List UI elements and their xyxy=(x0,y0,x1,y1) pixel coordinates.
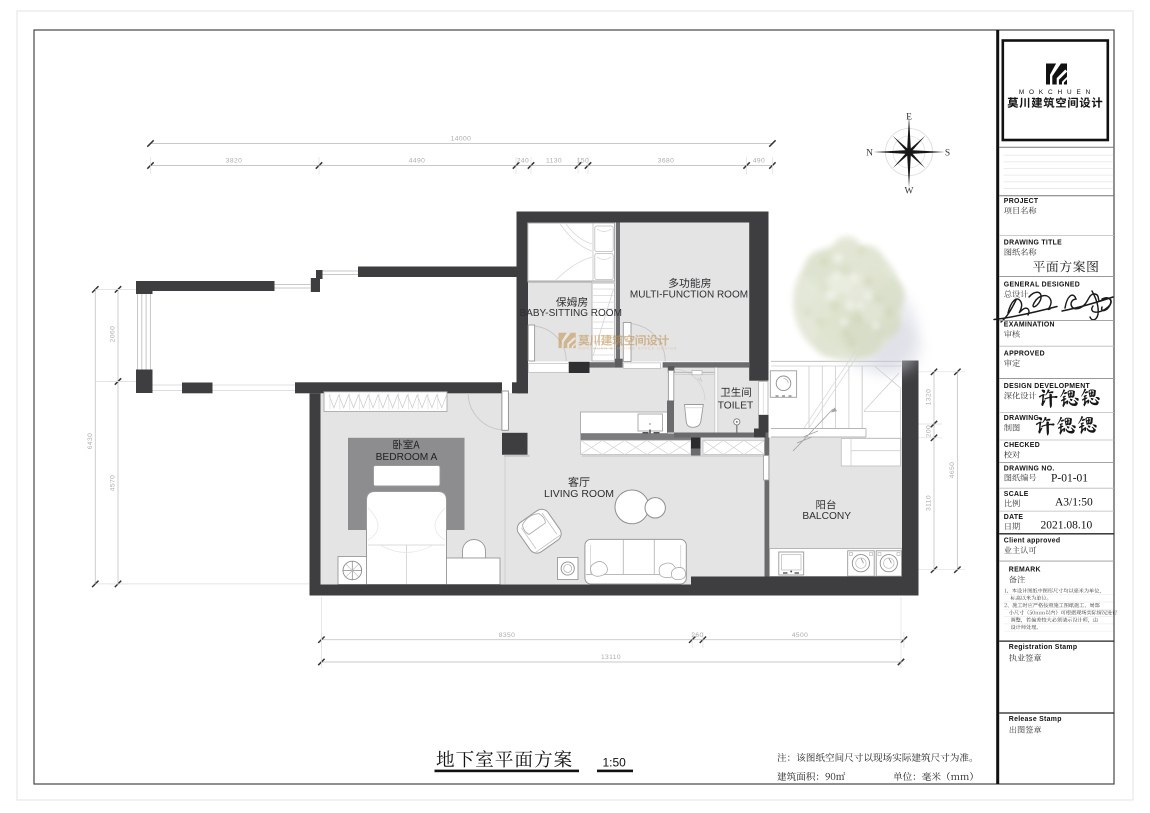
svg-text:3110: 3110 xyxy=(926,495,933,511)
svg-text:200: 200 xyxy=(926,425,933,437)
svg-text:13110: 13110 xyxy=(601,654,621,661)
svg-text:4650: 4650 xyxy=(949,462,956,478)
svg-text:3820: 3820 xyxy=(226,158,242,165)
svg-text:W: W xyxy=(905,187,914,197)
svg-text:N: N xyxy=(866,149,873,159)
svg-text:Client approved: Client approved xyxy=(1004,538,1061,545)
svg-text:SCALE: SCALE xyxy=(1004,491,1029,498)
svg-text:4570: 4570 xyxy=(110,475,117,491)
svg-text:A3/1:50: A3/1:50 xyxy=(1055,497,1093,509)
svg-text:240: 240 xyxy=(517,158,529,165)
svg-text:CHECKED: CHECKED xyxy=(1004,442,1040,449)
svg-text:MULTI-FUNCTION ROOM: MULTI-FUNCTION ROOM xyxy=(630,290,748,301)
svg-text:DRAWING: DRAWING xyxy=(1004,415,1039,422)
svg-text:1130: 1130 xyxy=(546,158,562,165)
svg-text:GENERAL DESIGNED: GENERAL DESIGNED xyxy=(1004,282,1080,289)
svg-text:DATE: DATE xyxy=(1004,514,1024,521)
svg-text:DESIGN DEVELOPMENT: DESIGN DEVELOPMENT xyxy=(1004,383,1091,390)
svg-text:MOKCHUEN BUILDING SPACE DESIGN: MOKCHUEN BUILDING SPACE DESIGN xyxy=(579,347,678,351)
svg-text:BABY-SITTING ROOM: BABY-SITTING ROOM xyxy=(519,308,621,319)
svg-text:1:50: 1:50 xyxy=(603,756,627,770)
svg-text:1320: 1320 xyxy=(926,389,933,405)
svg-text:M O K C H U E N: M O K C H U E N xyxy=(1019,89,1092,96)
svg-text:PROJECT: PROJECT xyxy=(1004,198,1039,205)
svg-text:EXAMINATION: EXAMINATION xyxy=(1004,321,1055,328)
svg-text:DRAWING NO.: DRAWING NO. xyxy=(1004,465,1055,472)
svg-text:P-01-01: P-01-01 xyxy=(1051,472,1088,484)
svg-text:BALCONY: BALCONY xyxy=(802,511,851,522)
svg-text:REMARK: REMARK xyxy=(1009,567,1041,574)
svg-text:14000: 14000 xyxy=(451,136,472,143)
svg-text:DRAWING TITLE: DRAWING TITLE xyxy=(1004,239,1062,246)
svg-text:4490: 4490 xyxy=(409,158,425,165)
svg-text:150: 150 xyxy=(577,158,589,165)
svg-text:TOILET: TOILET xyxy=(718,400,753,411)
svg-text:8350: 8350 xyxy=(499,632,515,639)
svg-text:BEDROOM A: BEDROOM A xyxy=(376,452,438,463)
svg-text:APPROVED: APPROVED xyxy=(1004,351,1045,358)
svg-text:3680: 3680 xyxy=(658,158,674,165)
svg-text:260: 260 xyxy=(691,632,703,639)
svg-text:490: 490 xyxy=(753,158,765,165)
svg-text:Registration Stamp: Registration Stamp xyxy=(1009,644,1078,651)
svg-text:4500: 4500 xyxy=(792,632,808,639)
svg-text:Release Stamp: Release Stamp xyxy=(1009,716,1062,723)
svg-text:E: E xyxy=(906,113,912,123)
svg-text:2060: 2060 xyxy=(110,326,117,342)
svg-text:2021.08.10: 2021.08.10 xyxy=(1041,520,1093,532)
svg-text:LIVING ROOM: LIVING ROOM xyxy=(544,488,614,500)
svg-text:S: S xyxy=(945,149,950,159)
svg-text:6430: 6430 xyxy=(87,433,94,449)
